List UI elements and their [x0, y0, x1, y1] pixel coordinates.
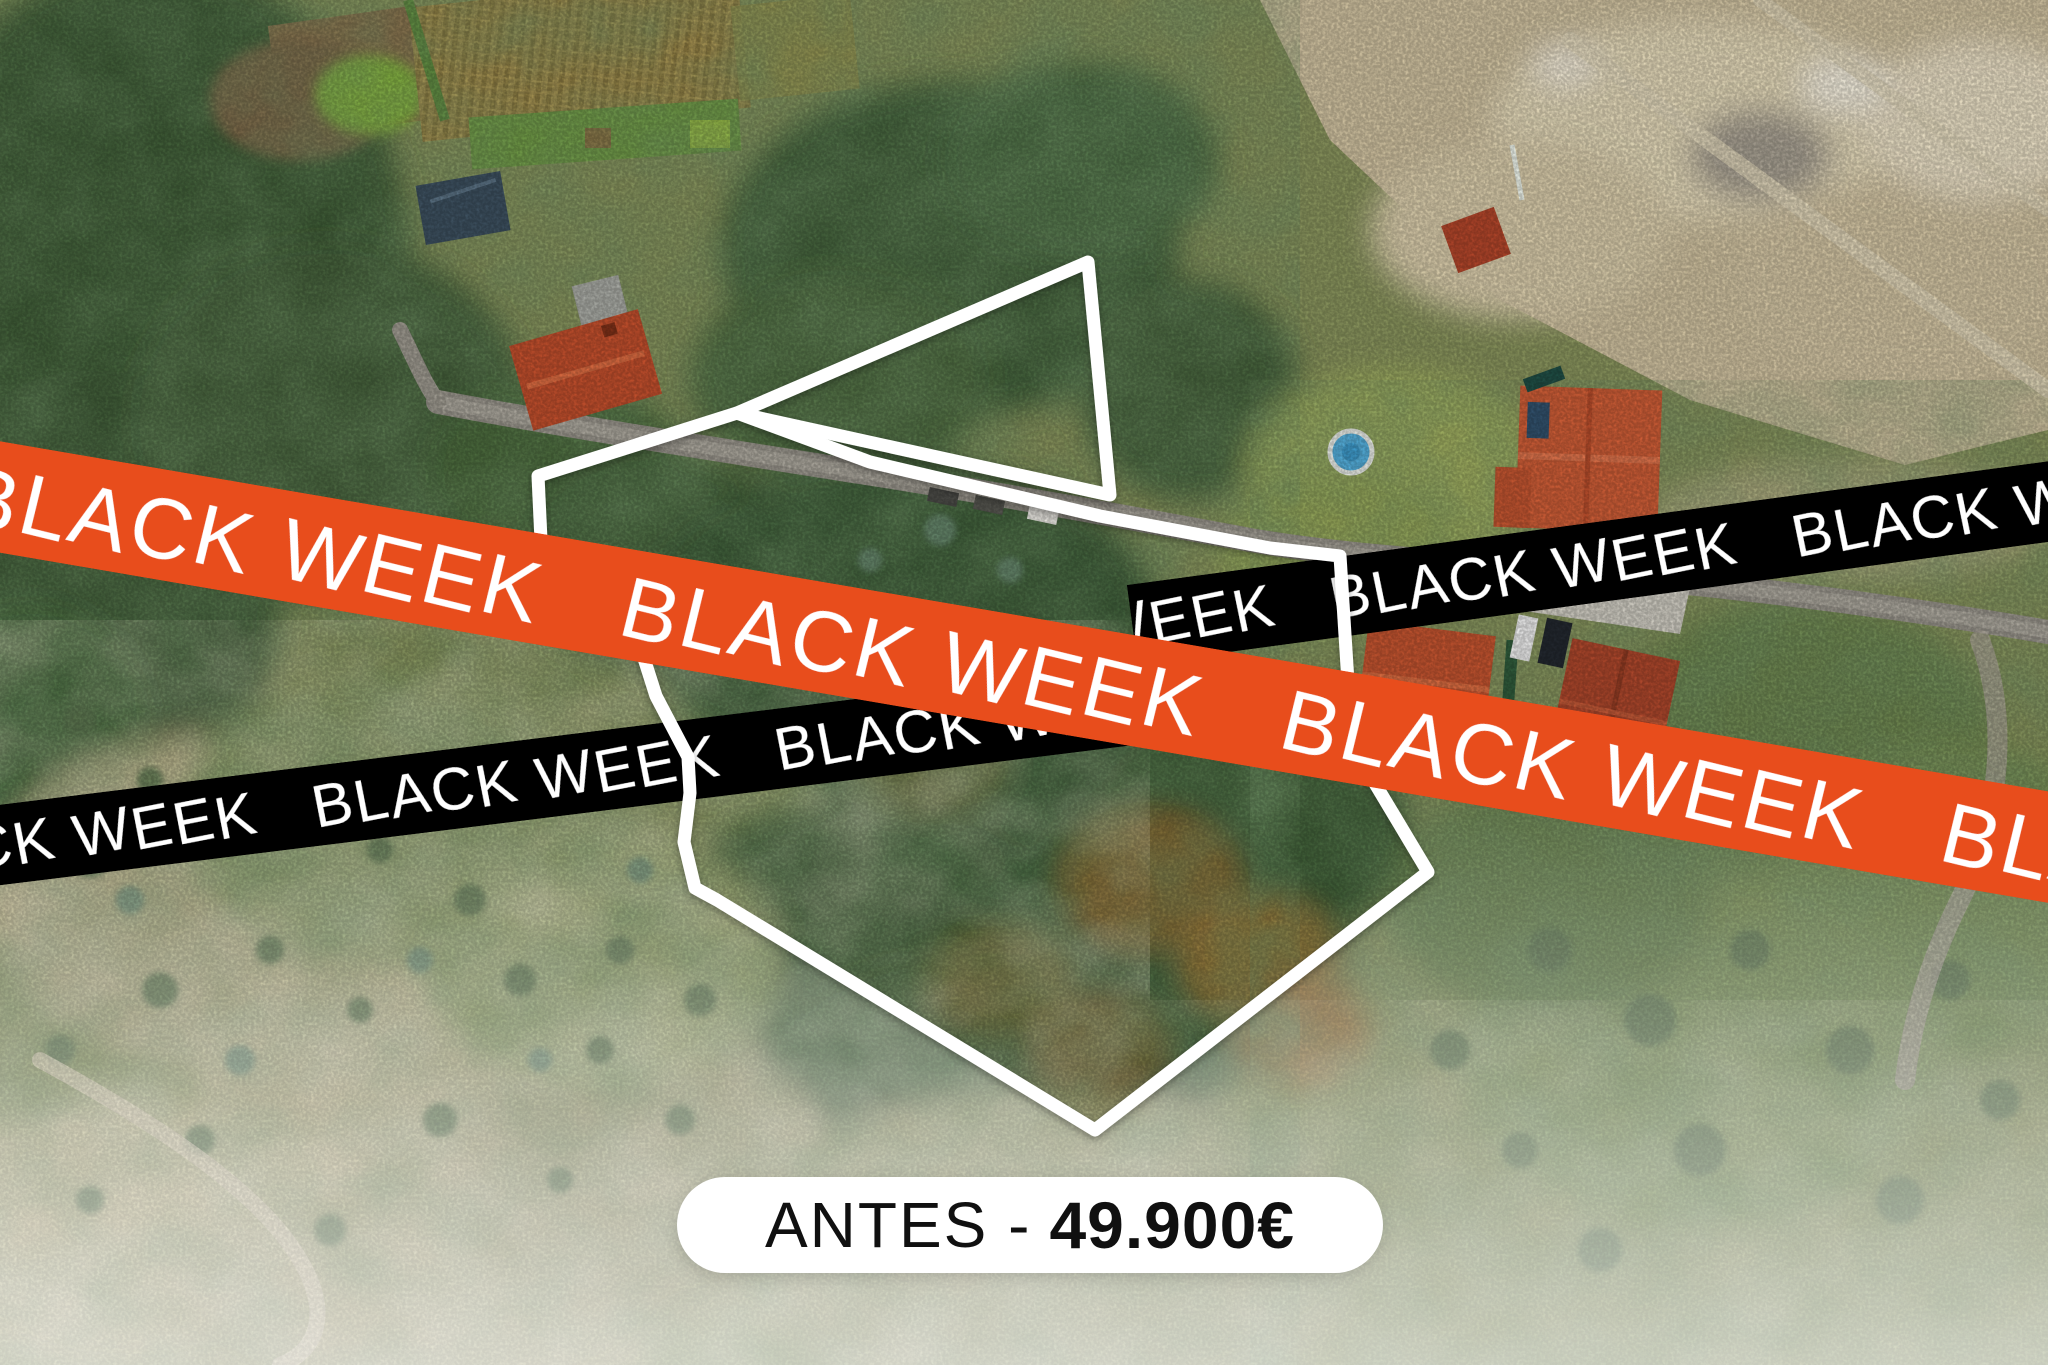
aerial-photo: BLACK WEEK BLACK WEEK BLACK WEEK BLACK W…	[0, 0, 2048, 1365]
promo-image: BLACK WEEK BLACK WEEK BLACK WEEK BLACK W…	[0, 0, 2048, 1365]
bottom-fade	[0, 780, 2048, 1365]
price-badge: ANTES - 49.900€	[677, 1177, 1383, 1273]
price-label: ANTES -	[765, 1188, 1031, 1262]
price-value: 49.900€	[1049, 1187, 1295, 1263]
